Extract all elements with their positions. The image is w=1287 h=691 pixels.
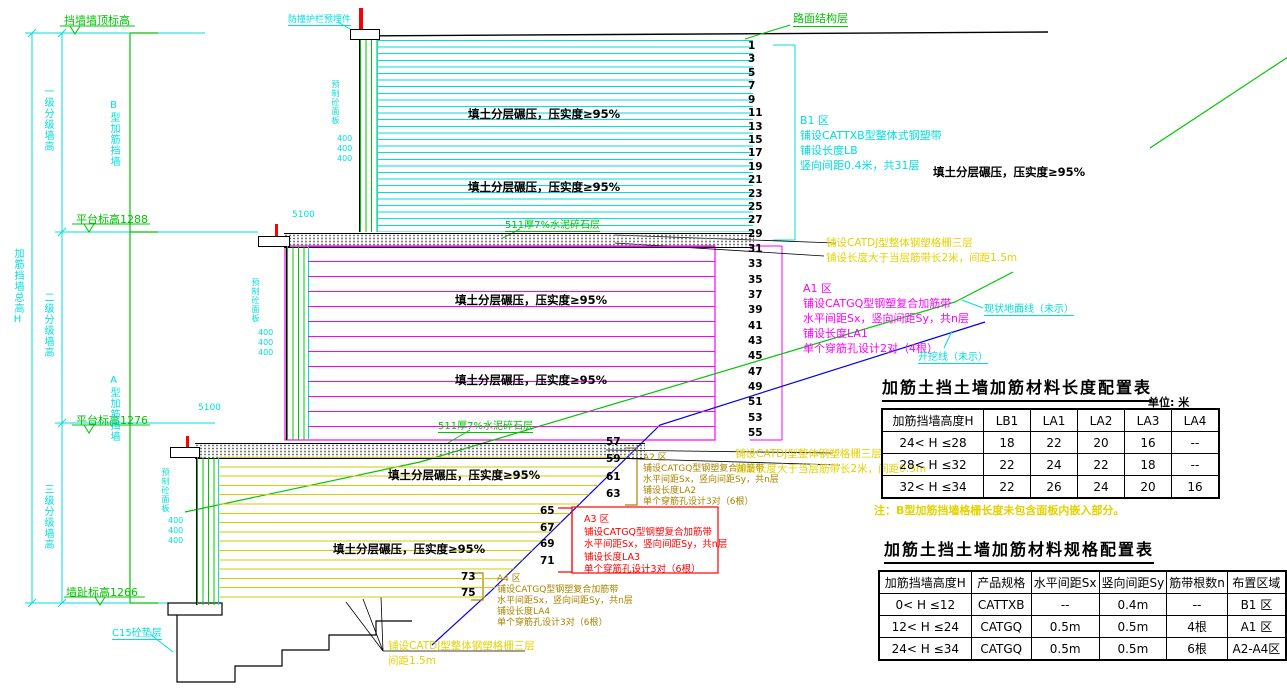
text-line: 19 xyxy=(748,161,763,173)
table-cell: 水平间距Sx xyxy=(1031,571,1099,594)
text-line: A4 区 xyxy=(497,571,633,582)
zone-a4-notes: A4 区铺设CATGQ型钢塑复合加筋带水平间距Sx，竖向间距Sy，共n层铺设长度… xyxy=(497,571,633,626)
total-height-label: 加筋挡墙总高H xyxy=(12,248,23,326)
elevation-1288-label: 平台标高1288 xyxy=(76,211,148,227)
tier1-layer-bracket xyxy=(773,45,795,240)
text-line: 13 xyxy=(748,121,763,133)
text-line: 31 xyxy=(748,243,763,255)
text-line: 69 xyxy=(540,538,555,550)
table-cell: A2-A4区 xyxy=(1227,638,1286,661)
text-line: 43 xyxy=(748,335,763,347)
cushion-band-2 xyxy=(195,443,645,459)
text-line: 39 xyxy=(748,304,763,316)
text-line: 9 xyxy=(748,94,763,106)
tier2-layer-numbers: 31333537394143454749515355 xyxy=(748,243,763,439)
table-cell: 布置区域 xyxy=(1227,571,1286,594)
fill-note-7: 填土分层碾压，压实度≥95% xyxy=(933,164,1085,180)
footing-grid-note: 铺设CATDJ型整体钢塑格栅三层间距1.5m xyxy=(388,638,535,668)
tier3-red-mark xyxy=(186,436,189,447)
table-cell: 32< H ≤34 xyxy=(882,476,984,499)
text-line: 铺设长度LA1 xyxy=(803,325,969,340)
zone-a1-notes: A1 区铺设CATGQ型钢塑复合加筋带水平间距Sx，竖向间距Sy，共n层铺设长度… xyxy=(803,280,969,355)
tier3-face-panel xyxy=(196,457,219,605)
a2-layer-numbers: 57596163 xyxy=(606,436,621,500)
text-line: 45 xyxy=(748,350,763,362)
road-structure-label: 路面结构层 xyxy=(793,10,848,27)
table-cell: 0.4m xyxy=(1099,594,1167,616)
tier1-panel-label: 预制砼面板 xyxy=(330,80,341,125)
fill-note-2: 填土分层碾压，压实度≥95% xyxy=(468,179,620,195)
table-cell: 22 xyxy=(1078,454,1125,476)
table-cell: 加筋挡墙高度H xyxy=(882,409,984,432)
text-line: 71 xyxy=(540,555,555,567)
fill-note-1: 填土分层碾压，压实度≥95% xyxy=(468,106,620,122)
elevation-toe-label: 墙趾标高1266 xyxy=(66,584,138,600)
text-line: 73 xyxy=(461,571,476,583)
table-cell: -- xyxy=(1172,432,1220,454)
text-line: 55 xyxy=(748,427,763,439)
zone-b1-notes: B1 区铺设CATTXB型整体式钢塑带铺设长度LB竖向间距0.4米，共31层 xyxy=(800,112,942,172)
text-line: 铺设CATTXB型整体式钢塑带 xyxy=(800,127,942,142)
text-line: 33 xyxy=(748,258,763,270)
table-cell: 16 xyxy=(1172,476,1220,499)
table-cell: 22 xyxy=(1031,432,1078,454)
cushion-label-1: 511厚7%水泥碎石层 xyxy=(505,216,600,232)
table-cell: 筋带根数n xyxy=(1167,571,1228,594)
cad-table: 加筋挡墙高度HLB1LA1LA2LA3LA424< H ≤2818222016-… xyxy=(881,408,1220,499)
tier3-height-label: 三级分级墙高 xyxy=(42,484,53,550)
tier2-red-mark xyxy=(275,224,278,236)
elevation-top-label: 挡墙墙顶标高 xyxy=(64,12,130,28)
retaining-wall-drawing: 挡墙墙顶标高 平台标高1288 平台标高1276 墙趾标高1266 加筋挡墙总高… xyxy=(0,0,1287,691)
elevation-markers xyxy=(60,26,150,605)
text-line: 7 xyxy=(748,80,763,92)
cad-table: 加筋挡墙高度H产品规格水平间距Sx竖向间距Sy筋带根数n布置区域0< H ≤12… xyxy=(878,570,1287,661)
text-line: 67 xyxy=(540,522,555,534)
fill-note-3: 填土分层碾压，压实度≥95% xyxy=(455,292,607,308)
table-cell: A1 区 xyxy=(1227,616,1286,638)
text-line: B1 区 xyxy=(800,112,942,127)
table-cell: 12< H ≤24 xyxy=(879,616,971,638)
table-cell: 26 xyxy=(1031,476,1078,499)
text-line: 21 xyxy=(748,174,763,186)
berm-dim-1: 5100 xyxy=(292,210,315,220)
tier2-height-label: 二级分级墙高 xyxy=(42,292,53,358)
table-cell: 0.5m xyxy=(1099,638,1167,661)
text-line: 29 xyxy=(748,228,763,240)
text-line: 49 xyxy=(748,381,763,393)
table-cell: -- xyxy=(1031,594,1099,616)
table-cell: CATTXB xyxy=(971,594,1031,616)
text-line: 1 xyxy=(748,40,763,52)
table-cell: 6根 xyxy=(1167,638,1228,661)
text-line: 61 xyxy=(606,471,621,483)
table-cell: 22 xyxy=(984,476,1031,499)
tier2-reinforcement-layers xyxy=(308,246,715,440)
length-table-title: 加筋土挡土墙加筋材料长度配置表 xyxy=(882,374,1152,402)
table-cell: 0< H ≤12 xyxy=(879,594,971,616)
tier2-face-panel xyxy=(286,246,309,440)
text-line: 铺设CATDJ型整体钢塑格栅三层 xyxy=(388,638,535,653)
fill-note-4: 填土分层碾压，压实度≥95% xyxy=(455,372,607,388)
table-cell: 竖向间距Sy xyxy=(1099,571,1167,594)
text-line: 23 xyxy=(748,188,763,200)
text-line: 铺设长度LA3 xyxy=(584,549,727,562)
road-surface-line xyxy=(352,32,1048,36)
tier1-height-label: 一级分级墙高 xyxy=(42,86,53,152)
table-cell: LA1 xyxy=(1031,409,1078,432)
tier2-panel-dims: 400400400 xyxy=(258,328,273,358)
table-cell: 0.5m xyxy=(1031,638,1099,661)
table-cell: 16 xyxy=(1125,432,1172,454)
zone-a3-notes: A3 区铺设CATGQ型钢塑复合加筋带水平间距Sx，竖向间距Sy，共n层铺设长度… xyxy=(584,511,727,574)
table-cell: 24< H ≤28 xyxy=(882,432,984,454)
table-cell: 18 xyxy=(984,432,1031,454)
text-line: 单个穿筋孔设计3对（6根） xyxy=(497,615,633,626)
interface-note-1: 铺设CATDJ型整体钢塑格栅三层铺设长度大于当层筋带长2米，间距1.5m xyxy=(826,235,1017,265)
table-cell: LB1 xyxy=(984,409,1031,432)
table-cell: 加筋挡墙高度H xyxy=(879,571,971,594)
footing-label: C15砼垫层 xyxy=(112,624,162,640)
table-cell: LA3 xyxy=(1125,409,1172,432)
table-cell: 24 xyxy=(1031,454,1078,476)
table-cell: 0.5m xyxy=(1099,616,1167,638)
text-line: 63 xyxy=(606,488,621,500)
table-cell: CATGQ xyxy=(971,638,1031,661)
text-line: 37 xyxy=(748,289,763,301)
stepped-excavation xyxy=(168,603,412,682)
table-cell: 20 xyxy=(1125,476,1172,499)
spec-table: 加筋挡墙高度H产品规格水平间距Sx竖向间距Sy筋带根数n布置区域0< H ≤12… xyxy=(878,570,1287,661)
text-line: 铺设长度大于当层筋带长2米，间距1.5m xyxy=(826,250,1017,265)
text-line: 铺设长度LB xyxy=(800,142,942,157)
table-cell: -- xyxy=(1172,454,1220,476)
tier1-coping xyxy=(350,29,380,40)
text-line: 17 xyxy=(748,147,763,159)
table-cell: 产品规格 xyxy=(971,571,1031,594)
table-cell: 28< H ≤32 xyxy=(882,454,984,476)
text-line: 铺设CATGQ型钢塑复合加筋带 xyxy=(803,295,969,310)
tier1-face-panel xyxy=(359,40,378,232)
text-line: 铺设CATGQ型钢塑复合加筋带 xyxy=(584,524,727,537)
text-line: 单个穿筋孔设计3对（6根） xyxy=(643,494,779,505)
table-cell: 24 xyxy=(1078,476,1125,499)
text-line: 25 xyxy=(748,201,763,213)
road-label-leader xyxy=(745,25,790,39)
fill-note-6: 填土分层碾压，压实度≥95% xyxy=(333,541,485,557)
text-line: 59 xyxy=(606,453,621,465)
text-line: 41 xyxy=(748,320,763,332)
text-line: A3 区 xyxy=(584,511,727,524)
barrier-label: 防撞护栏预埋件 xyxy=(288,12,351,26)
text-line: 5 xyxy=(748,67,763,79)
tier3-panel-label: 预制砼面板 xyxy=(160,468,171,513)
text-line: 57 xyxy=(606,436,621,448)
ground-line-label: 现状地面线（未示） xyxy=(984,300,1074,316)
text-line: 水平间距Sx，竖向间距Sy，共n层 xyxy=(497,593,633,604)
table-cell: 20 xyxy=(1078,432,1125,454)
text-line: 铺设CATDJ型整体钢塑格栅三层 xyxy=(826,235,1017,250)
table-cell: 22 xyxy=(984,454,1031,476)
berm-dim-2: 5100 xyxy=(198,403,221,413)
tier1-panel-dims: 400400400 xyxy=(337,134,352,164)
text-line: 75 xyxy=(461,587,476,599)
spec-table-title: 加筋土挡土墙加筋材料规格配置表 xyxy=(884,536,1154,564)
fill-note-5: 填土分层碾压，压实度≥95% xyxy=(388,467,540,483)
text-line: 47 xyxy=(748,366,763,378)
table-cell: 4根 xyxy=(1167,616,1228,638)
a3-layer-numbers: 65676971 xyxy=(540,505,555,567)
text-line: 53 xyxy=(748,412,763,424)
text-line: 27 xyxy=(748,214,763,226)
text-line: 15 xyxy=(748,134,763,146)
table-cell: CATGQ xyxy=(971,616,1031,638)
tier1-layer-numbers: 1357911131517192123252729 xyxy=(748,40,763,240)
a4-layer-numbers: 7375 xyxy=(461,571,476,599)
table-cell: 24< H ≤34 xyxy=(879,638,971,661)
table-cell: 0.5m xyxy=(1031,616,1099,638)
table-cell: B1 区 xyxy=(1227,594,1286,616)
length-table-note: 注：B型加筋挡墙格栅长度未包含面板内嵌入部分。 xyxy=(874,502,1124,518)
text-line: 65 xyxy=(540,505,555,517)
tier3-panel-dims: 400400400 xyxy=(168,516,183,546)
text-line: 水平间距Sx，竖向间距Sy，共n层 xyxy=(584,536,727,549)
tier2-panel-label: 预制砼面板 xyxy=(250,278,261,323)
wall-type-a-label: A型加筋挡墙 xyxy=(108,375,119,442)
text-line: 35 xyxy=(748,274,763,286)
text-line: 水平间距Sx，竖向间距Sy，共n层 xyxy=(803,310,969,325)
wall-type-b-label: B型加筋挡墙 xyxy=(108,100,119,167)
wall-type-brackets xyxy=(130,33,158,603)
excavation-line-label: 开挖线（未示） xyxy=(918,348,988,364)
cushion-label-2: 511厚7%水泥碎石层 xyxy=(438,417,533,433)
table-cell: LA4 xyxy=(1172,409,1220,432)
text-line: 11 xyxy=(748,107,763,119)
length-table: 加筋挡墙高度HLB1LA1LA2LA3LA424< H ≤2818222016-… xyxy=(881,408,1220,499)
text-line: 3 xyxy=(748,53,763,65)
text-line: 竖向间距0.4米，共31层 xyxy=(800,157,942,172)
table-cell: LA2 xyxy=(1078,409,1125,432)
text-line: 间距1.5m xyxy=(388,653,535,668)
text-line: 51 xyxy=(748,396,763,408)
table-cell: 18 xyxy=(1125,454,1172,476)
text-line: 铺设CATGQ型钢塑复合加筋带 xyxy=(497,582,633,593)
text-line: A1 区 xyxy=(803,280,969,295)
tier1-reinforcement-layers xyxy=(377,40,753,232)
table-cell: -- xyxy=(1167,594,1228,616)
